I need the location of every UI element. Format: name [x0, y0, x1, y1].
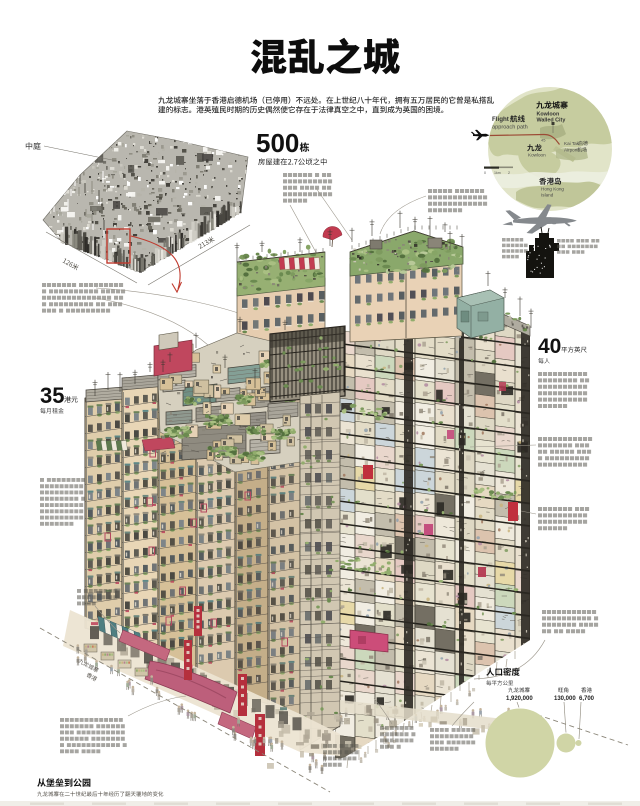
svg-text:Airport: Airport	[564, 148, 578, 153]
svg-text:approach path: approach path	[492, 125, 528, 131]
svg-text:500: 500	[256, 128, 299, 158]
svg-text:40: 40	[538, 335, 561, 358]
svg-text:0: 0	[484, 171, 486, 175]
svg-text:1,920,000: 1,920,000	[506, 696, 533, 702]
svg-text:Island: Island	[541, 193, 554, 198]
svg-text:Walled City: Walled City	[537, 118, 566, 124]
svg-text:35: 35	[40, 383, 64, 408]
svg-text:130,000: 130,000	[554, 696, 576, 702]
svg-text:1km: 1km	[494, 171, 501, 175]
svg-text:2: 2	[508, 171, 510, 175]
svg-text:Flight: Flight	[492, 116, 509, 123]
svg-text:Kai Tak: Kai Tak	[564, 141, 580, 146]
svg-text:Kowloon: Kowloon	[528, 153, 546, 158]
svg-text:6,700: 6,700	[579, 696, 595, 702]
svg-text:45: 45	[541, 138, 546, 143]
svg-text:Hong Kong: Hong Kong	[541, 187, 564, 192]
